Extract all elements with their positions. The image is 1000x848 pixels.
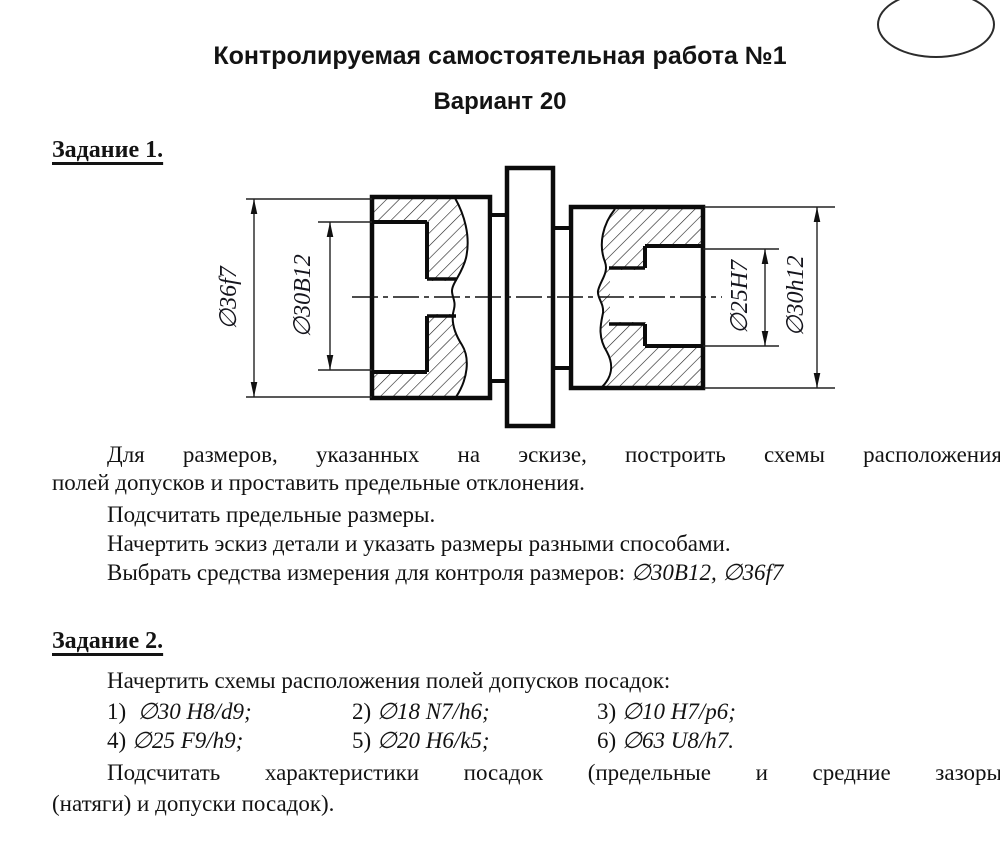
fit-item: 3) ∅10 H7/p6; (597, 698, 736, 726)
fit-value: ∅18 N7/h6; (377, 699, 490, 724)
fit-value: ∅63 U8/h7. (622, 728, 734, 753)
task1-paragraph1-line1: Для размеров, указанных на эскизе, постр… (52, 441, 1000, 469)
task1-heading: Задание 1. (52, 135, 163, 165)
fit-number: 3) (597, 699, 616, 724)
shaft-neck-left (490, 215, 507, 381)
fit-number: 1) (107, 699, 126, 724)
fit-value: ∅10 H7/p6; (622, 699, 736, 724)
fit-item: 4) ∅25 F9/h9; (107, 727, 243, 755)
task1-paragraph2: Подсчитать предельные размеры. (52, 501, 1000, 529)
task2-intro: Начертить схемы расположения полей допус… (107, 667, 1000, 695)
fit-value: ∅20 H6/k5; (377, 728, 490, 753)
fit-item: 5) ∅20 H6/k5; (352, 727, 490, 755)
task2-heading: Задание 2. (52, 626, 163, 656)
fit-item: 2) ∅18 N7/h6; (352, 698, 490, 726)
task1-paragraph1-line2: полей допусков и проставить предельные о… (52, 469, 947, 497)
task2-outro-line2: (натяги) и допуски посадок). (52, 790, 947, 818)
worksheet-page: { "page": { "title": "Контролируемая сам… (0, 0, 1000, 848)
fit-number: 6) (597, 728, 616, 753)
dimension-right-outer: ∅30h12 (704, 207, 835, 388)
dim-label-left-outer: ∅36f7 (216, 265, 242, 330)
fit-value: ∅25 F9/h9; (132, 728, 243, 753)
technical-drawing: ∅36f7 ∅30B12 ∅25H7 ∅30h12 (180, 150, 860, 450)
task1-measure-sizes: ∅30B12, ∅36f7 (631, 560, 784, 585)
variant-subtitle: Вариант 20 (0, 87, 1000, 117)
fit-number: 5) (352, 728, 371, 753)
task2-outro-line1: Подсчитать характеристики посадок (преде… (52, 759, 1000, 787)
dim-label-right-outer: ∅30h12 (783, 256, 809, 337)
dim-label-left-bore: ∅30B12 (290, 254, 316, 338)
task1-paragraph4: Выбрать средства измерения для контроля … (52, 559, 1000, 587)
dimension-left-bore: ∅30B12 (290, 222, 372, 370)
fit-item: 1) ∅30 H8/d9; (107, 698, 252, 726)
fit-number: 4) (107, 728, 126, 753)
page-title: Контролируемая самостоятельная работа №1 (0, 41, 1000, 71)
dim-label-right-bore: ∅25H7 (727, 259, 753, 334)
left-hub-part (371, 197, 490, 398)
fit-number: 2) (352, 699, 371, 724)
task1-paragraph3: Начертить эскиз детали и указать размеры… (52, 530, 1000, 558)
fit-value: ∅30 H8/d9; (138, 699, 252, 724)
shaft-neck-right (553, 228, 571, 368)
task1-paragraph4-prefix: Выбрать средства измерения для контроля … (107, 560, 631, 585)
fit-item: 6) ∅63 U8/h7. (597, 727, 734, 755)
